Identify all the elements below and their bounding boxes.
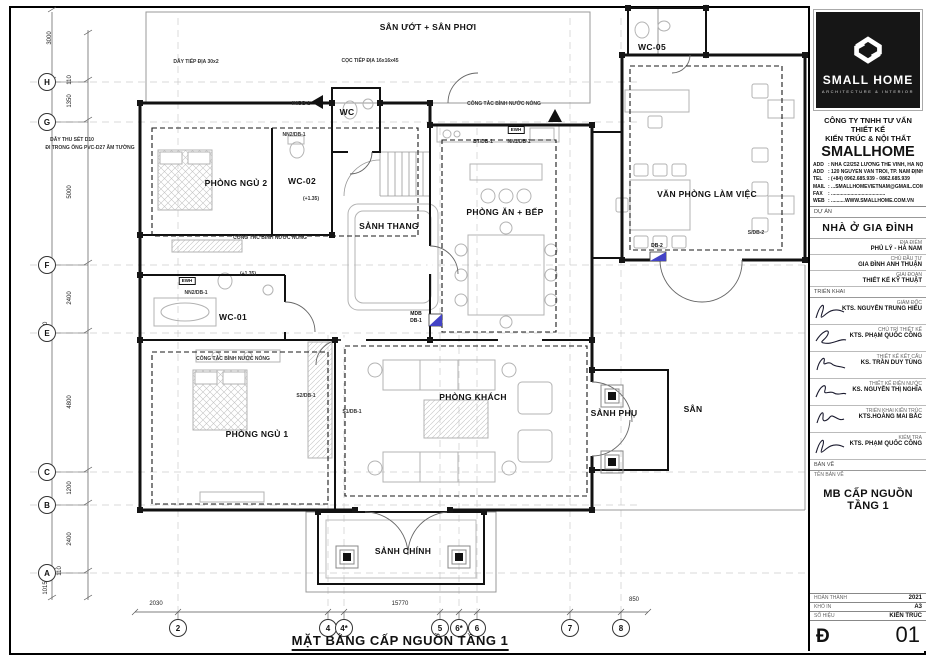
dimension-lines <box>48 7 651 620</box>
project-rows: ĐỊA ĐIỂMPHỦ LÝ - HÀ NAMCHỦ ĐẦU TƯGIA ĐÌN… <box>810 239 926 287</box>
project-name: NHÀ Ở GIA ĐÌNH <box>810 218 926 239</box>
annotation-text: DB-1 <box>410 318 422 324</box>
annotation-text: S2/DB-1 <box>296 393 315 399</box>
annotation-text: IN/DB-1 <box>292 101 310 107</box>
annotation-text: DÂY THU SÉT D10 <box>50 137 94 143</box>
brand-name: SMALL HOME <box>823 73 913 87</box>
drawing-name-label: TÊN BẢN VẼ <box>810 471 926 478</box>
dimension-text: 110 <box>57 566 63 576</box>
annotation-text: (+1.35) <box>303 196 319 202</box>
sheet-number: 01 <box>896 622 920 648</box>
info-row: HOÀN THÀNH2021 <box>810 593 926 602</box>
annotation-text: S/DB-2 <box>748 230 764 236</box>
annotation-text: CÔNG TẮC BÌNH NƯỚC NÓNG <box>233 235 307 241</box>
company-line1: CÔNG TY TNHH TƯ VẤN THIẾT KẾ <box>813 116 923 134</box>
grid-bubble-7: 7 <box>561 619 579 637</box>
executor-row: TRIỂN KHAI KIẾN TRÚCKTS.HOÀNG MAI BẮC <box>810 406 926 433</box>
room-label-wc: WC <box>340 107 355 117</box>
project-row-value: GIA ĐÌNH ANH THUẬN <box>810 262 926 271</box>
logo-frame: SMALL HOME ARCHITECTURE & INTERIOR <box>813 9 923 111</box>
room-label-wc01: WC-01 <box>219 312 247 322</box>
sheet-info: HOÀN THÀNH2021KHỔ INA3SỐ HIỆUKIẾN TRÚC Đ… <box>810 593 926 651</box>
floor-plan-svg <box>0 0 812 660</box>
annotation-text: DB-2 <box>651 243 663 249</box>
annotation-text: CÔNG TẮC BÌNH NƯỚC NÓNG <box>467 101 541 107</box>
info-row: KHỔ INA3 <box>810 602 926 611</box>
room-label-san-uot: SÂN ƯỚT + SÂN PHƠI <box>380 22 477 32</box>
contact-row: MAIL: ...SMALLHOMEVIETNAM@GMAIL.COM <box>813 184 923 191</box>
annotation-text: NN1/DB-1 <box>507 139 530 145</box>
grid-bubble-B: B <box>38 496 56 514</box>
title-block: SMALL HOME ARCHITECTURE & INTERIOR CÔNG … <box>808 6 926 651</box>
contact-row: FAX: ...................................… <box>813 191 923 198</box>
room-label-san: SÂN <box>684 404 703 414</box>
section-ban-ve: BẢN VẼ <box>810 460 926 471</box>
dimension-text: 2400 <box>67 291 73 304</box>
annotation-text: EWH <box>508 126 525 134</box>
company-logo: SMALL HOME ARCHITECTURE & INTERIOR <box>816 12 920 108</box>
company-info: CÔNG TY TNHH TƯ VẤN THIẾT KẾ KIẾN TRÚC &… <box>810 113 926 207</box>
executor-name: KTS. NGUYỄN TRUNG HIẾU <box>810 306 926 314</box>
floor-plan: SÂN ƯỚT + SÂN PHƠIWCWC-05PHÒNG NGỦ 2WC-0… <box>0 0 812 660</box>
annotation-text: S1/DB-1 <box>342 409 361 415</box>
annotation-text: BT/DB-1 <box>473 139 493 145</box>
dimension-text: 5000 <box>67 185 73 198</box>
room-label-sanh-chinh: SẢNH CHÍNH <box>375 546 431 556</box>
walls <box>140 8 805 584</box>
dimension-text: 110 <box>67 75 73 85</box>
room-label-wc05: WC-05 <box>638 42 666 52</box>
executor-name: KS. NGUYỄN THỊ NGHĨA <box>810 387 926 395</box>
executor-row: GIÁM ĐỐCKTS. NGUYỄN TRUNG HIẾU <box>810 298 926 325</box>
annotation-text: ĐI TRONG ỐNG PVC-D27 ÂM TƯỜNG <box>45 145 134 151</box>
plan-title: MẶT BẰNG CẤP NGUỒN TẦNG 1 <box>292 633 509 651</box>
annotation-text: NN2/DB-1 <box>282 132 305 138</box>
executor-list: GIÁM ĐỐCKTS. NGUYỄN TRUNG HIẾUCHỦ TRÌ TH… <box>810 298 926 460</box>
grid-bubble-C: C <box>38 463 56 481</box>
annotation-text: CÔNG TẮC BÌNH NƯỚC NÓNG <box>196 356 270 362</box>
contact-row: WEB: ..........WWW.SMALLHOME.COM.VN <box>813 198 923 205</box>
dimension-text: 850 <box>629 597 639 603</box>
annotation-text: MDB <box>410 311 421 317</box>
executor-name: KTS. PHẠM QUỐC CÔNG <box>810 333 926 341</box>
grid-bubble-F: F <box>38 256 56 274</box>
executor-row: THIẾT KẾ KẾT CẤUKS. TRẦN DUY TÙNG <box>810 352 926 379</box>
section-du-an: DỰ ÁN <box>810 207 926 218</box>
annotation-text: NN2/DB-1 <box>184 290 207 296</box>
drawing-sheet: { "plan": { "title": "MẶT BẰNG CẤP NGUỒN… <box>0 0 930 660</box>
contact-row: TEL: (+84) 0962.685.939 - 0862.685.939 <box>813 176 923 183</box>
dimension-text: 1200 <box>67 481 73 494</box>
info-rows: HOÀN THÀNH2021KHỔ INA3SỐ HIỆUKIẾN TRÚC <box>810 593 926 620</box>
grid-bubble-G: G <box>38 113 56 131</box>
room-label-wc02: WC-02 <box>288 176 316 186</box>
dimension-text: 4800 <box>67 395 73 408</box>
section-trien-khai: TRIỂN KHAI <box>810 287 926 298</box>
room-label-phong-ngu-1: PHÒNG NGỦ 1 <box>226 429 289 439</box>
sheet-code: Đ <box>816 626 830 648</box>
room-label-phong-ngu-2: PHÒNG NGỦ 2 <box>205 178 268 188</box>
stairs <box>344 152 430 196</box>
company-name: SMALLHOME <box>813 144 923 160</box>
project-row-value: THIẾT KẾ KỸ THUẬT <box>810 278 926 287</box>
executor-row: THIẾT KẾ ĐIỆN NƯỚCKS. NGUYỄN THỊ NGHĨA <box>810 379 926 406</box>
executor-name: KTS.HOÀNG MAI BẮC <box>810 414 926 422</box>
dimension-text: 15770 <box>392 601 409 607</box>
grid-bubble-2: 2 <box>169 619 187 637</box>
dimension-text: 1350 <box>67 94 73 107</box>
project-row-value: PHỦ LÝ - HÀ NAM <box>810 246 926 255</box>
room-label-sanh-thang: SẢNH THANG <box>359 221 419 231</box>
dimension-text: 3000 <box>47 31 53 44</box>
sheet-number-row: Đ 01 <box>810 620 926 651</box>
grid-bubble-E: E <box>38 324 56 342</box>
company-contacts: ADD: NHÀ C2/252 LƯƠNG THẾ VINH, HÀ NỘIAD… <box>813 162 923 205</box>
contact-row: ADD: NHÀ C2/252 LƯƠNG THẾ VINH, HÀ NỘI <box>813 162 923 169</box>
room-label-phong-an-bep: PHÒNG ĂN + BẾP <box>466 207 543 217</box>
executor-name: KTS. PHẠM QUỐC CÔNG <box>810 441 926 449</box>
annotation-text: EWH <box>179 277 196 285</box>
contact-row: ADD: 120 NGUYỄN VĂN TRỖI, TP. NAM ĐỊNH <box>813 169 923 176</box>
room-label-phong-khach: PHÒNG KHÁCH <box>439 392 507 402</box>
executor-row: KIỂM TRAKTS. PHẠM QUỐC CÔNG <box>810 433 926 460</box>
brand-tagline: ARCHITECTURE & INTERIOR <box>822 89 914 94</box>
dimension-text: 1015 <box>43 581 49 594</box>
info-row: SỐ HIỆUKIẾN TRÚC <box>810 611 926 620</box>
executor-name: KS. TRẦN DUY TÙNG <box>810 360 926 368</box>
grid-bubble-H: H <box>38 73 56 91</box>
smallhome-logo-icon <box>842 26 894 70</box>
annotation-text: (+1.35) <box>240 271 256 277</box>
annotation-text: CỌC TIẾP ĐỊA 16x16x45 <box>342 58 399 64</box>
dimension-text: 2030 <box>149 601 162 607</box>
executor-row: CHỦ TRÌ THIẾT KẾKTS. PHẠM QUỐC CÔNG <box>810 325 926 352</box>
room-label-van-phong: VĂN PHÒNG LÀM VIỆC <box>657 189 757 199</box>
company-line2: KIẾN TRÚC & NỘI THẤT <box>813 134 923 143</box>
dimension-text: 2400 <box>67 532 73 545</box>
grid-bubble-A: A <box>38 564 56 582</box>
annotation-text: DÂY TIẾP ĐỊA 30x2 <box>173 59 218 65</box>
room-label-sanh-phu: SẢNH PHỤ <box>591 408 638 418</box>
drawing-name: MB CẤP NGUỒN TẦNG 1 <box>810 488 926 512</box>
grid-bubble-8: 8 <box>612 619 630 637</box>
